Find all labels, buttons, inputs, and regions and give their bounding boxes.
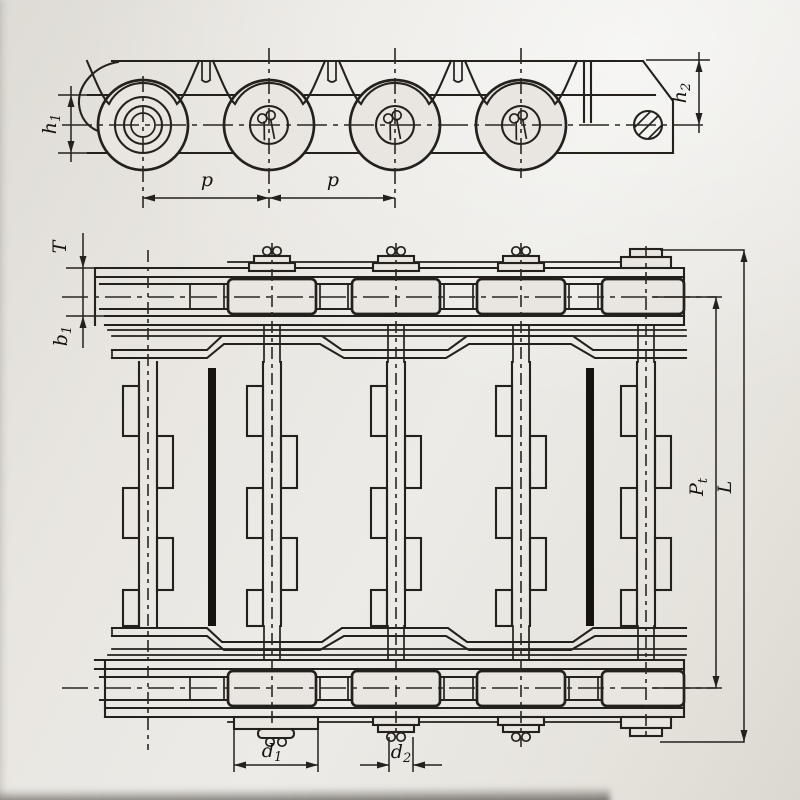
- large-roller-end: [234, 717, 318, 746]
- dimension-h1: h1: [39, 86, 92, 162]
- p-label: p: [201, 169, 213, 191]
- bottom-strand: [95, 626, 686, 746]
- top-strand: [95, 247, 686, 362]
- h2-label: h2: [669, 83, 694, 104]
- dimension-T: T: [49, 233, 110, 348]
- p-label: p: [327, 169, 339, 191]
- section-bar: [208, 368, 216, 626]
- Pt-label: Pt: [686, 477, 711, 497]
- hatched-end-pin: [630, 106, 672, 153]
- slat-edge-strips-bottom: [108, 628, 686, 655]
- engineering-drawing-photo: h1 p p h2: [0, 0, 800, 800]
- end-attachment-plate: [591, 61, 673, 153]
- conveyor-chain-drawing: h1 p p h2: [0, 0, 800, 800]
- slat-edge-strips-top: [108, 330, 686, 358]
- photo-shadow-edge: [0, 786, 610, 800]
- plan-view: T b1 Pt L d1: [49, 233, 748, 772]
- L-label: L: [714, 481, 736, 495]
- dimension-b1: b1: [50, 326, 75, 346]
- dimension-h2: h2: [646, 52, 710, 133]
- d1-label: d1: [262, 740, 282, 765]
- dimension-p-left: p: [143, 169, 269, 202]
- dimension-d2: d2: [360, 737, 442, 772]
- dimension-p-right: p: [269, 169, 395, 202]
- side-view: h1 p p h2: [39, 48, 710, 208]
- b1-label: b1: [50, 326, 75, 346]
- slat-columns: [123, 362, 671, 626]
- h1-label: h1: [39, 114, 64, 135]
- dimension-Pt: Pt: [652, 297, 720, 688]
- section-bar: [586, 368, 594, 626]
- d2-label: d2: [391, 741, 411, 766]
- T-label: T: [49, 239, 71, 253]
- photo-shadow-edge-left: [0, 0, 6, 800]
